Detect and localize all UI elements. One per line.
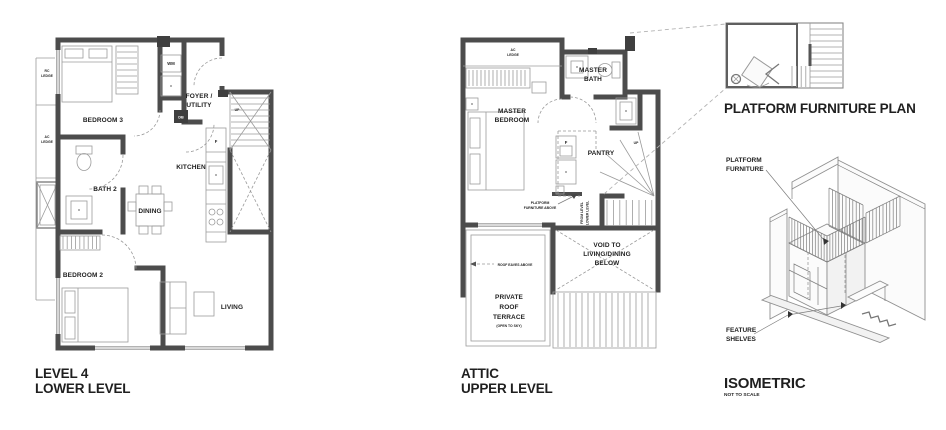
room-label-living: LIVING (221, 304, 243, 311)
isometric-view: PLATFORM FURNITURE FEATURE SHELVES ISOME… (724, 157, 925, 398)
note-fridge-lower: F (215, 139, 218, 144)
lower-furniture (60, 46, 226, 342)
lower-windows (55, 50, 245, 351)
iso-scale-note: NOT TO SCALE (724, 392, 760, 398)
lower-stairs (230, 92, 271, 232)
iso-caption: ISOMETRIC (724, 375, 806, 392)
floorplan-sheet: RC LEDGE AC LEDGE BEDROOM 3 BATH 2 FOYER… (0, 0, 946, 430)
iso-label-platform-2: FURNITURE (726, 166, 764, 173)
room-label-terrace-2: ROOF (499, 304, 518, 311)
attic-note-ac-ledge-2: LEDGE (507, 53, 519, 57)
note-rc-ledge-2: LEDGE (41, 74, 53, 78)
attic-note-stair-2: LOWER LEVEL (586, 201, 590, 226)
note-wm: WM (167, 61, 175, 66)
room-label-bath-2: BATH 2 (93, 186, 117, 193)
attic-note-platform-1: PLATFORM (531, 201, 550, 205)
room-label-terrace-sub: (OPEN TO SKY) (496, 324, 521, 328)
platform-furniture-detail: PLATFORM FURNITURE PLAN (724, 23, 916, 116)
attic-terrace (466, 230, 550, 346)
room-label-void-1: VOID TO (593, 242, 620, 249)
lower-caption-2: LOWER LEVEL (35, 381, 130, 396)
attic-wardrobe (466, 68, 546, 93)
iso-label-shelves-2: SHELVES (726, 336, 757, 343)
lower-caption-1: LEVEL 4 (35, 366, 89, 381)
iso-label-shelves-1: FEATURE (726, 327, 757, 334)
attic-note-up: UP (634, 141, 639, 145)
lower-walls (58, 36, 271, 348)
room-label-bedroom-3: BEDROOM 3 (83, 117, 124, 124)
room-label-foyer-1: FOYER / (186, 93, 213, 100)
floorplan-drawing: RC LEDGE AC LEDGE BEDROOM 3 BATH 2 FOYER… (0, 0, 946, 430)
attic-terrace-door (478, 222, 542, 228)
lower-ledge-strip (36, 58, 58, 300)
attic-note-fridge: F (565, 140, 568, 145)
room-label-void-3: BELOW (595, 260, 620, 267)
note-rc-ledge-1: RC (45, 69, 50, 73)
room-label-master-bedroom-1: MASTER (498, 108, 526, 115)
iso-label-platform-1: PLATFORM (726, 157, 762, 164)
room-label-bedroom-2: BEDROOM 2 (63, 272, 104, 279)
attic-caption-1: ATTIC (461, 366, 499, 381)
iso-sawtooth-break (862, 312, 896, 326)
note-up-lower: UP (235, 108, 240, 112)
room-label-foyer-2: UTILITY (186, 102, 212, 109)
attic-note-stair-1: FROM LEVEL (580, 202, 584, 224)
attic-roof-hatch (553, 292, 656, 348)
attic-note-platform-2: FURNITURE ABOVE (524, 206, 557, 210)
room-label-master-bedroom-2: BEDROOM (495, 117, 530, 124)
note-db: DB (178, 116, 184, 120)
iso-top-return-wall (792, 157, 838, 189)
detail-caption: PLATFORM FURNITURE PLAN (724, 101, 916, 116)
room-label-terrace-1: PRIVATE (495, 294, 523, 301)
room-label-dining: DINING (138, 208, 161, 215)
room-label-void-2: LIVING/DINING (583, 251, 631, 258)
room-label-master-bath-2: BATH (584, 76, 602, 83)
room-label-kitchen: KITCHEN (176, 164, 206, 171)
note-ac-ledge-1: AC (45, 135, 50, 139)
attic-note-roof-eaves: ROOF EAVES ABOVE (498, 263, 534, 267)
note-ac-ledge-2: LEDGE (41, 140, 53, 144)
attic-note-ac-ledge-1: AC (511, 48, 516, 52)
lower-level-plan: RC LEDGE AC LEDGE BEDROOM 3 BATH 2 FOYER… (35, 36, 271, 396)
attic-level-plan: AC LEDGE MASTER BATH MASTER BEDROOM PANT… (461, 36, 658, 396)
room-label-master-bath-1: MASTER (579, 67, 607, 74)
room-label-terrace-3: TERRACE (493, 314, 526, 321)
room-label-pantry: PANTRY (588, 150, 615, 157)
attic-caption-2: UPPER LEVEL (461, 381, 553, 396)
